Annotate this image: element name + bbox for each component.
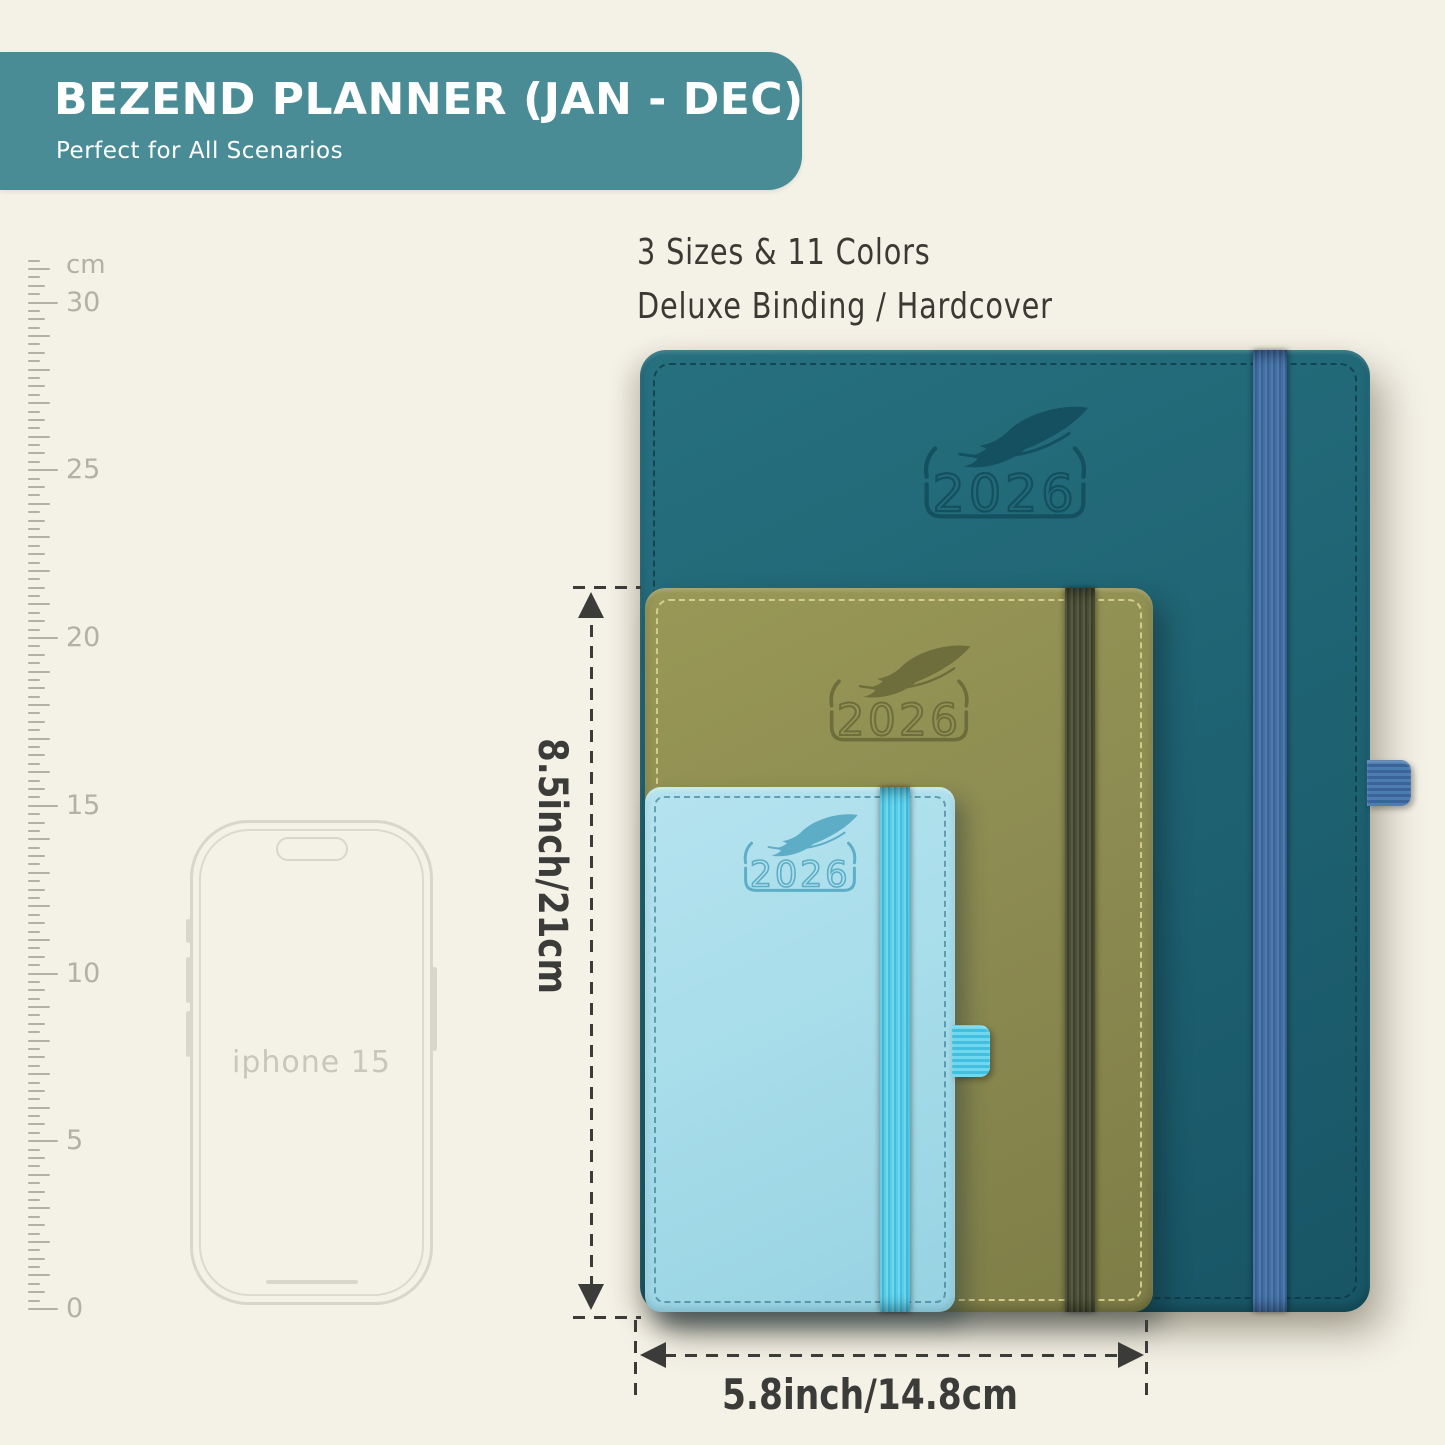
ruler-label: 15: [66, 791, 100, 821]
ruler-tick: [28, 662, 40, 664]
ruler-tick: [28, 939, 50, 941]
ruler-tick: [28, 620, 45, 622]
ruler-tick: [28, 1056, 45, 1058]
ruler-tick: [28, 461, 40, 463]
year-text: 2026: [750, 854, 851, 895]
ruler-tick: [28, 1006, 50, 1008]
ruler-tick: [28, 754, 45, 756]
ruler-tick: [28, 629, 40, 631]
width-extension-line-left: [634, 1320, 637, 1404]
ruler-tick: [28, 1140, 58, 1142]
ruler-label: 20: [66, 623, 100, 653]
year-emboss-logo: 2026: [920, 405, 1090, 528]
ruler-tick: [28, 1283, 40, 1285]
ruler-tick: [28, 276, 40, 278]
ruler-tick: [28, 595, 40, 597]
ruler-tick: [28, 637, 58, 639]
ruler-tick: [28, 260, 40, 262]
sizes-colors-note: 3 Sizes & 11 Colors: [637, 232, 931, 273]
ruler-tick: [28, 1031, 40, 1033]
ruler-tick: [28, 578, 40, 580]
ruler-tick: [28, 436, 50, 438]
height-extension-line-top: [573, 586, 641, 589]
ruler-tick: [28, 486, 45, 488]
ruler-tick: [28, 973, 58, 975]
ruler-tick: [28, 402, 50, 404]
ruler-tick: [28, 696, 40, 698]
width-dimension-label: 5.8inch/14.8cm: [665, 1370, 1075, 1419]
ruler-tick: [28, 1199, 40, 1201]
ruler-tick: [28, 1040, 50, 1042]
iphone-outline: iphone 15: [190, 820, 433, 1305]
ruler-tick: [28, 612, 40, 614]
ruler-tick: [28, 1241, 50, 1243]
ruler-tick: [28, 494, 40, 496]
ruler-tick: [28, 1233, 40, 1235]
ruler-tick: [28, 1132, 40, 1134]
ruler-tick: [28, 360, 40, 362]
year-emboss-logo: 2026: [741, 813, 859, 898]
year-text: 2026: [837, 695, 961, 746]
ruler: cm 302520151050: [28, 250, 148, 1312]
ruler-tick: [28, 712, 40, 714]
binding-note: Deluxe Binding / Hardcover: [637, 286, 1053, 327]
ruler-label: 10: [66, 959, 100, 989]
ruler-tick: [28, 310, 40, 312]
ruler-tick: [28, 562, 40, 564]
elastic-band: [880, 787, 910, 1312]
ruler-tick: [28, 478, 40, 480]
ruler-tick: [28, 721, 45, 723]
iphone-volume-down-button: [186, 1011, 191, 1057]
ruler-label: 5: [66, 1126, 83, 1156]
ruler-tick: [28, 1258, 45, 1260]
year-emboss-logo: 2026: [826, 644, 972, 749]
ruler-tick: [28, 1014, 40, 1016]
ruler-tick: [28, 352, 45, 354]
iphone-home-indicator: [266, 1280, 358, 1284]
arrow-right-icon: [1118, 1342, 1144, 1368]
ruler-tick: [28, 528, 40, 530]
ruler-tick: [28, 905, 50, 907]
ruler-tick: [28, 419, 45, 421]
ruler-tick: [28, 780, 40, 782]
ruler-tick: [28, 847, 40, 849]
ruler-tick: [28, 469, 58, 471]
ruler-tick: [28, 444, 40, 446]
ruler-tick: [28, 520, 45, 522]
ruler-tick: [28, 822, 45, 824]
ruler-tick: [28, 813, 40, 815]
ruler-label: 30: [66, 288, 100, 318]
ruler-tick: [28, 1291, 45, 1293]
ruler-tick: [28, 830, 40, 832]
ruler-tick: [28, 729, 40, 731]
ruler-tick: [28, 553, 45, 555]
ruler-tick: [28, 746, 40, 748]
ruler-tick: [28, 1274, 50, 1276]
height-extension-line-bottom: [573, 1316, 641, 1319]
ruler-tick: [28, 872, 50, 874]
ruler-tick: [28, 503, 50, 505]
ruler-tick: [28, 771, 50, 773]
ruler-tick: [28, 603, 50, 605]
ruler-tick: [28, 1191, 45, 1193]
ruler-tick: [28, 855, 45, 857]
ruler-tick: [28, 293, 40, 295]
ruler-tick: [28, 645, 40, 647]
ruler-tick: [28, 1157, 45, 1159]
ruler-tick: [28, 1107, 50, 1109]
ruler-tick: [28, 427, 40, 429]
ruler-tick: [28, 343, 40, 345]
feather-icon: [963, 407, 1088, 468]
ruler-tick: [28, 704, 50, 706]
ruler-tick: [28, 511, 40, 513]
height-dimension-label: 8.5inch/21cm: [527, 734, 577, 998]
ruler-tick: [28, 1207, 50, 1209]
ruler-tick: [28, 1123, 45, 1125]
ruler-tick: [28, 880, 40, 882]
ruler-tick: [28, 1249, 40, 1251]
ruler-tick: [28, 452, 45, 454]
ruler-tick: [28, 1115, 40, 1117]
pen-loop: [1367, 760, 1411, 806]
ruler-tick: [28, 1300, 40, 1302]
ruler-tick: [28, 1216, 40, 1218]
iphone-dynamic-island: [276, 837, 348, 861]
ruler-label: 0: [66, 1294, 83, 1324]
ruler-tick: [28, 805, 58, 807]
ruler-tick: [28, 1082, 40, 1084]
elastic-band: [1065, 588, 1095, 1312]
width-dimension-line: [664, 1354, 1120, 1357]
arrow-up-icon: [578, 592, 604, 618]
ruler-tick: [28, 914, 40, 916]
product-subtitle: Perfect for All Scenarios: [56, 138, 343, 164]
ruler-tick: [28, 377, 40, 379]
ruler-tick: [28, 964, 40, 966]
ruler-tick: [28, 1224, 45, 1226]
ruler-tick: [28, 285, 45, 287]
year-text: 2026: [933, 465, 1078, 524]
ruler-label: 25: [66, 455, 100, 485]
product-title: BEZEND PLANNER (JAN - DEC): [54, 74, 804, 125]
ruler-tick: [28, 327, 40, 329]
feather-icon: [863, 646, 970, 698]
ruler-tick: [28, 654, 45, 656]
ruler-tick: [28, 947, 40, 949]
ruler-tick: [28, 838, 50, 840]
ruler-tick: [28, 1266, 40, 1268]
ruler-tick: [28, 1308, 58, 1310]
ruler-tick: [28, 1098, 40, 1100]
ruler-tick: [28, 922, 45, 924]
arrow-left-icon: [640, 1342, 666, 1368]
ruler-tick: [28, 998, 40, 1000]
ruler-tick: [28, 1073, 50, 1075]
ruler-tick: [28, 788, 45, 790]
ruler-tick: [28, 863, 40, 865]
ruler-tick: [28, 587, 45, 589]
ruler-tick: [28, 738, 50, 740]
elastic-band: [1253, 350, 1287, 1312]
ruler-tick: [28, 1023, 45, 1025]
ruler-tick: [28, 1149, 40, 1151]
ruler-tick: [28, 411, 40, 413]
height-dimension-line: [590, 604, 593, 1290]
ruler-tick: [28, 1048, 40, 1050]
pen-loop: [952, 1025, 990, 1077]
header-banner: BEZEND PLANNER (JAN - DEC) Perfect for A…: [0, 52, 802, 190]
ruler-tick: [28, 931, 40, 933]
ruler-tick: [28, 394, 40, 396]
ruler-tick: [28, 545, 40, 547]
ruler-tick: [28, 1165, 40, 1167]
ruler-tick: [28, 302, 58, 304]
width-extension-line-right: [1145, 1320, 1148, 1404]
ruler-tick: [28, 889, 45, 891]
ruler-tick: [28, 318, 45, 320]
ruler-tick: [28, 687, 45, 689]
ruler-tick: [28, 956, 45, 958]
ruler-tick: [28, 796, 40, 798]
ruler-tick: [28, 1065, 40, 1067]
ruler-tick: [28, 335, 50, 337]
feather-icon: [771, 814, 858, 856]
ruler-tick: [28, 1174, 50, 1176]
ruler-tick: [28, 981, 40, 983]
iphone-power-button: [432, 967, 437, 1051]
ruler-tick: [28, 897, 40, 899]
ruler-tick: [28, 1182, 40, 1184]
ruler-tick: [28, 385, 45, 387]
product-infographic: BEZEND PLANNER (JAN - DEC) Perfect for A…: [0, 0, 1445, 1445]
iphone-mute-switch: [186, 919, 191, 943]
ruler-tick: [28, 763, 40, 765]
ruler-tick: [28, 536, 50, 538]
ruler-tick: [28, 989, 45, 991]
ruler-tick: [28, 679, 40, 681]
arrow-down-icon: [578, 1284, 604, 1310]
planner-small-blue: 2026: [645, 787, 955, 1312]
iphone-label: iphone 15: [193, 1045, 430, 1080]
ruler-tick: [28, 570, 50, 572]
iphone-volume-up-button: [186, 957, 191, 1003]
ruler-tick: [28, 268, 50, 270]
ruler-tick: [28, 671, 50, 673]
ruler-unit-label: cm: [66, 250, 106, 280]
ruler-tick: [28, 369, 50, 371]
ruler-tick: [28, 1090, 45, 1092]
